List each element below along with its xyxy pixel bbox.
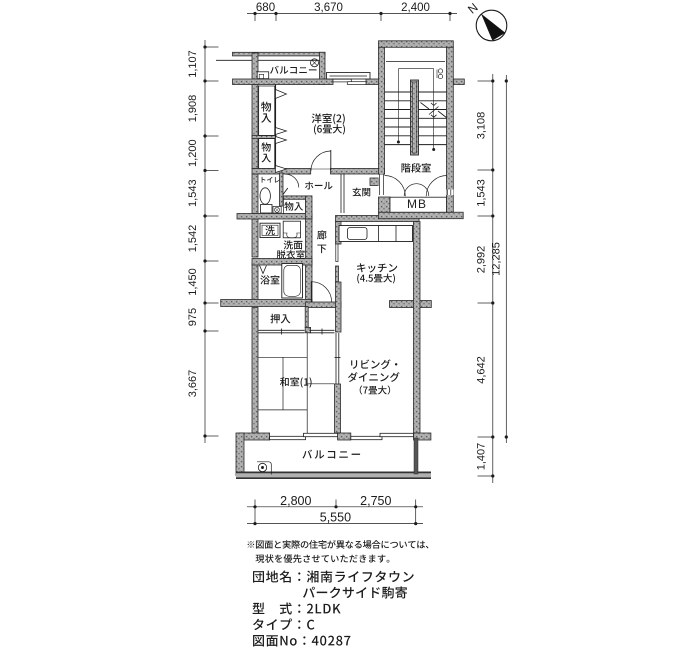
svg-text:1,543: 1,543 (187, 179, 199, 207)
svg-text:975: 975 (187, 308, 199, 326)
svg-text:2,800: 2,800 (280, 494, 311, 508)
svg-text:1,200: 1,200 (187, 139, 199, 167)
svg-text:680: 680 (256, 2, 275, 14)
svg-text:1,542: 1,542 (187, 225, 199, 253)
svg-text:3,670: 3,670 (314, 2, 343, 14)
svg-text:2,750: 2,750 (360, 494, 391, 508)
svg-text:4,642: 4,642 (476, 356, 488, 384)
svg-text:12,285: 12,285 (490, 242, 502, 276)
svg-text:1,908: 1,908 (187, 95, 199, 123)
svg-text:3,108: 3,108 (476, 112, 488, 140)
svg-text:MB: MB (407, 197, 427, 211)
svg-text:1,450: 1,450 (187, 268, 199, 296)
svg-text:2,992: 2,992 (476, 246, 488, 274)
svg-text:1,407: 1,407 (476, 443, 488, 471)
svg-text:1,543: 1,543 (476, 179, 488, 207)
svg-text:5,550: 5,550 (320, 510, 351, 524)
svg-text:1,107: 1,107 (187, 50, 199, 78)
svg-text:2,400: 2,400 (401, 2, 430, 14)
svg-text:3,667: 3,667 (187, 370, 199, 398)
